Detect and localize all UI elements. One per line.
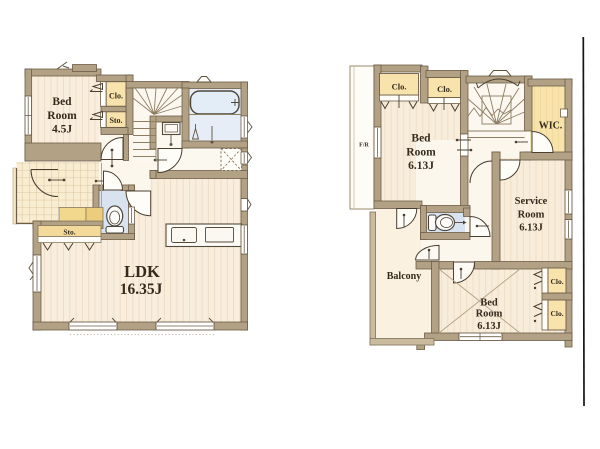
svg-text:Room: Room	[47, 110, 77, 122]
svg-text:Clo.: Clo.	[550, 277, 563, 286]
svg-text:Room: Room	[476, 309, 503, 320]
svg-text:Clo.: Clo.	[437, 84, 452, 94]
svg-text:F/R: F/R	[359, 143, 369, 149]
svg-text:Clo.: Clo.	[550, 309, 563, 318]
svg-text:Room: Room	[406, 147, 436, 159]
svg-text:WIC.: WIC.	[539, 121, 563, 132]
svg-text:Sto.: Sto.	[63, 228, 75, 237]
svg-text:16.35J: 16.35J	[120, 281, 163, 298]
svg-text:Bed: Bed	[52, 96, 72, 108]
svg-text:Bed: Bed	[411, 133, 431, 145]
svg-text:6.13J: 6.13J	[408, 160, 434, 172]
svg-text:6.13J: 6.13J	[477, 321, 501, 332]
svg-text:Balcony: Balcony	[387, 271, 421, 282]
svg-text:6.13J: 6.13J	[519, 223, 543, 234]
svg-text:Clo.: Clo.	[109, 92, 123, 101]
svg-text:Service: Service	[515, 196, 548, 207]
svg-text:Clo.: Clo.	[392, 82, 407, 92]
svg-text:Room: Room	[518, 210, 545, 221]
svg-text:Bed: Bed	[480, 298, 498, 309]
svg-text:4.5J: 4.5J	[52, 124, 72, 136]
svg-text:Sto.: Sto.	[109, 116, 122, 125]
svg-text:LDK: LDK	[124, 262, 160, 281]
